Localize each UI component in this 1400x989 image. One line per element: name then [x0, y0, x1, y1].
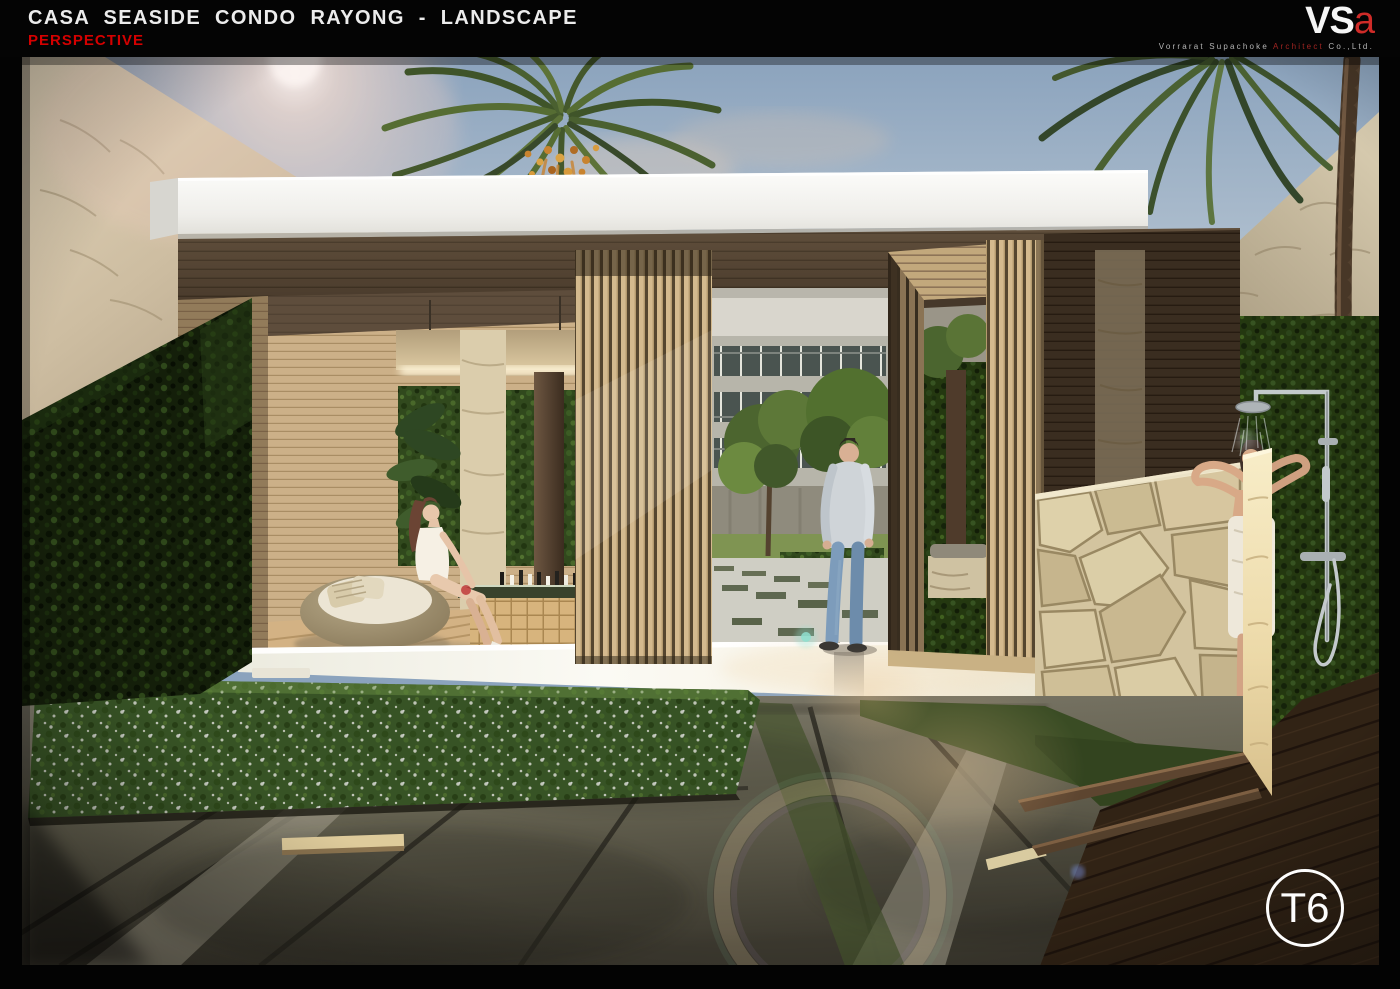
company-prefix: Vorrarat Supachoke [1159, 42, 1269, 51]
company-accent: Architect [1273, 42, 1324, 51]
vsa-logo-mark: VSa [1305, 0, 1374, 42]
sheet-badge: T6 [1266, 869, 1344, 947]
sheet-title: CASA SEASIDE CONDO RAYONG - LANDSCAPE [28, 7, 578, 30]
sheet-badge-label: T6 [1280, 884, 1329, 932]
company-suffix: Co.,Ltd. [1328, 42, 1374, 51]
presentation-sheet: CASA SEASIDE CONDO RAYONG - LANDSCAPE PE… [0, 0, 1400, 989]
perspective-rendering [22, 57, 1379, 965]
logo-a: a [1354, 0, 1374, 42]
sheet-subtitle: PERSPECTIVE [28, 32, 144, 49]
rendering-frame [22, 57, 1379, 965]
logo-vs: VS [1305, 0, 1354, 42]
company-name: Vorrarat Supachoke Architect Co.,Ltd. [1159, 42, 1374, 51]
vignette [22, 57, 1379, 965]
title-bar: CASA SEASIDE CONDO RAYONG - LANDSCAPE PE… [0, 0, 1400, 57]
vsa-logo: VSa [1305, 2, 1374, 40]
